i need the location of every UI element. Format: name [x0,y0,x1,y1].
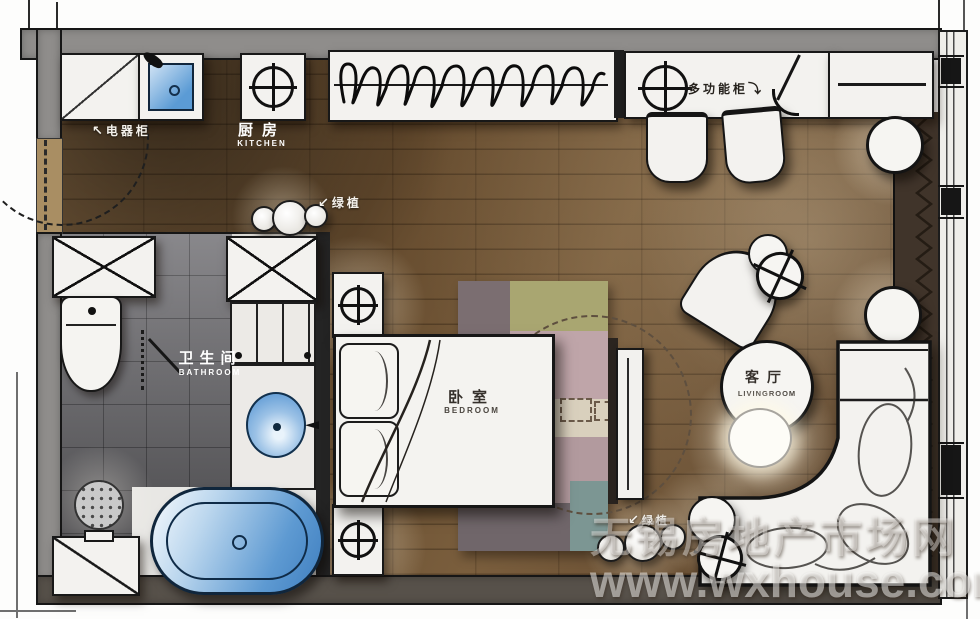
arrow-sw-icon: ↙ [318,195,329,210]
bathroom-label-zh: 卫生间 [150,347,270,368]
bathroom-label-en: BATHROOM [150,368,270,377]
wall-stub [614,50,624,118]
kitchen-label-zh: 厨房 [202,119,322,140]
storage-cross-box [52,236,156,298]
bathroom-bench [52,536,140,596]
window-sill-line [938,217,964,219]
light-symbol-icon [340,522,376,558]
window-mullion [941,445,961,495]
plant [597,534,625,562]
plant [624,524,662,562]
drain-icon [169,85,180,96]
window-mullion [941,58,961,84]
window-mullion [941,188,961,215]
arrow-sw-icon: ↙ [628,512,639,527]
basin-faucet-icon [305,421,319,429]
arrow-se-icon: ⤵ [748,81,761,96]
kitchen-sink [148,63,194,111]
plant-annotation-living: ↙绿植 [628,512,670,528]
storage-cross-box [226,236,318,302]
light-symbol-icon [340,287,376,323]
hinge-dot [304,352,311,359]
round-stool [864,286,922,344]
plant-label: 绿植 [642,515,670,527]
stove-counter [240,53,306,121]
bedroom-label-zh: 卧室 [392,386,552,407]
window-sill-line [938,86,964,88]
floor-plan: ↖电器柜 厨房 KITCHEN 多功能柜⤵ ↙绿植 卫生间 BATHROOM [0,0,980,619]
sketch-line [16,372,18,618]
nightstand [332,272,384,338]
tv-panel [616,348,644,500]
duvet-crease-icon [336,337,552,505]
vanity-counter [230,364,316,490]
appliance-cabinet-label: 电器柜 [106,124,151,138]
sketch-line [56,2,58,30]
multi-function-cabinet-label: 多功能柜 [688,82,748,96]
bathroom-door-dashed [141,330,144,390]
dining-chair [721,106,787,186]
plant-label: 绿植 [332,196,362,210]
nightstand [332,504,384,576]
shelf-line [838,83,926,86]
bedroom-label-en: BEDROOM [392,406,552,415]
kitchen-sink-counter [138,53,204,121]
multi-function-cabinet-annotation: 多功能柜⤵ [688,78,764,97]
window-band [938,30,968,599]
toilet [60,296,122,392]
kitchen-cabinet-right [828,51,934,119]
bathtub-drain-icon [232,535,247,550]
wardrobe-hanging-clothes [328,50,618,122]
tv-dashed-mark [560,398,592,422]
plant-annotation-kitchen: ↙绿植 [318,194,362,211]
stove-burner-icon [252,66,294,108]
light-symbol-icon [642,65,688,111]
window-sill-line [938,185,964,187]
sketch-line [0,610,76,612]
sketch-line [938,0,940,30]
arrow-nw-icon: ↖ [92,123,103,138]
toilet-flush-icon [88,307,96,315]
plant [272,200,308,236]
round-stool [866,116,924,174]
bench-faucet [84,530,114,542]
window-sill-line [938,497,964,499]
kitchen-label-en: KITCHEN [202,139,322,148]
rug-block [458,503,570,551]
bed [333,334,555,508]
toilet-tank-line [66,324,116,326]
wash-basin [246,392,306,458]
sketch-line [28,0,30,30]
appliance-cabinet-annotation: ↖电器柜 [92,122,151,139]
kitchen-cabinet [60,53,140,121]
bathtub [150,487,324,595]
tv-panel-line [627,358,629,490]
faucet-icon [141,49,164,70]
basin-drain-icon [273,423,281,431]
shower-drain-icon [74,480,124,530]
window-sill-line [938,442,964,444]
dining-chair [646,112,708,183]
window-sill-line [938,55,964,57]
clothes-scribble-icon [330,52,612,116]
